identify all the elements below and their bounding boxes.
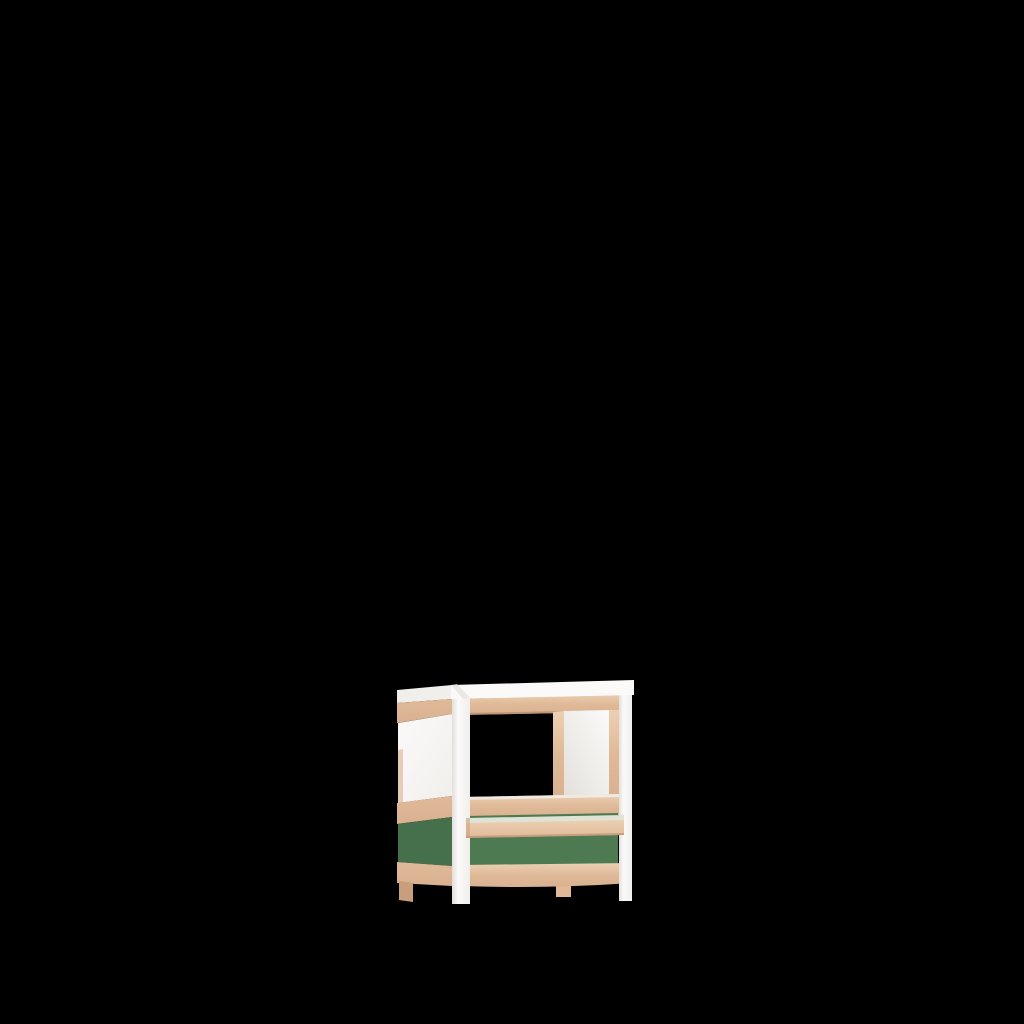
- window-divider: [553, 711, 564, 798]
- front-bottom-rail: [460, 863, 632, 887]
- front-frame-sliver: [609, 710, 620, 797]
- front-right-post: [619, 681, 632, 901]
- side-face: [397, 685, 452, 886]
- side-panel-edge-sliver: [398, 749, 403, 805]
- product-render-play-stand: [0, 0, 1024, 1024]
- front-face: [460, 693, 632, 887]
- black-backdrop: [0, 0, 1024, 1024]
- side-white-panel: [398, 714, 452, 803]
- side-green-panel: [398, 817, 452, 866]
- front-left-post: [452, 686, 470, 904]
- counter-bar: [466, 815, 624, 838]
- front-white-panel: [564, 710, 609, 798]
- rear-left-leg: [399, 881, 413, 902]
- counter-bar-left-endcap: [466, 818, 470, 838]
